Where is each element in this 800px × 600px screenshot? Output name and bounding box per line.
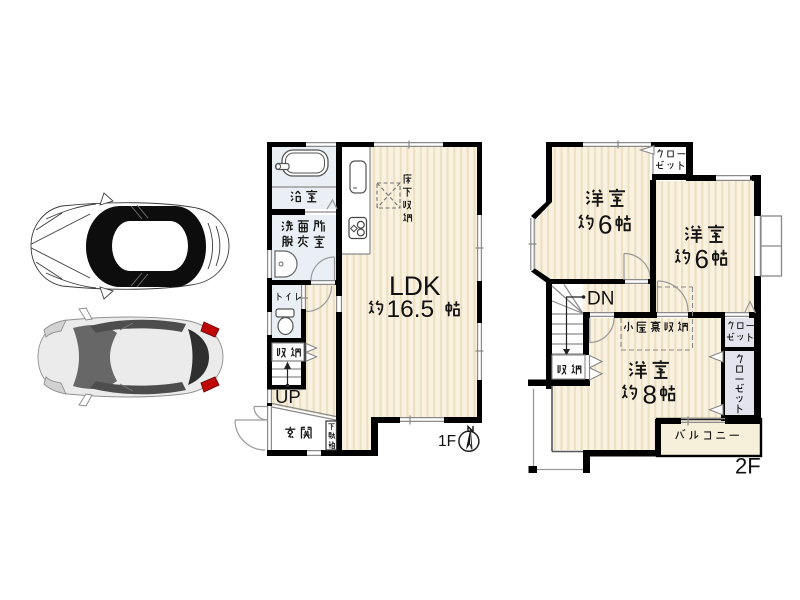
svg-text:UP: UP [275,386,301,407]
svg-text:DN: DN [587,289,614,310]
svg-text:8: 8 [643,380,657,410]
svg-text:16.5: 16.5 [387,296,435,323]
svg-text:1F: 1F [438,433,456,450]
svg-text:2F: 2F [735,454,761,479]
svg-text:6: 6 [598,210,612,240]
svg-text:6: 6 [695,244,709,274]
